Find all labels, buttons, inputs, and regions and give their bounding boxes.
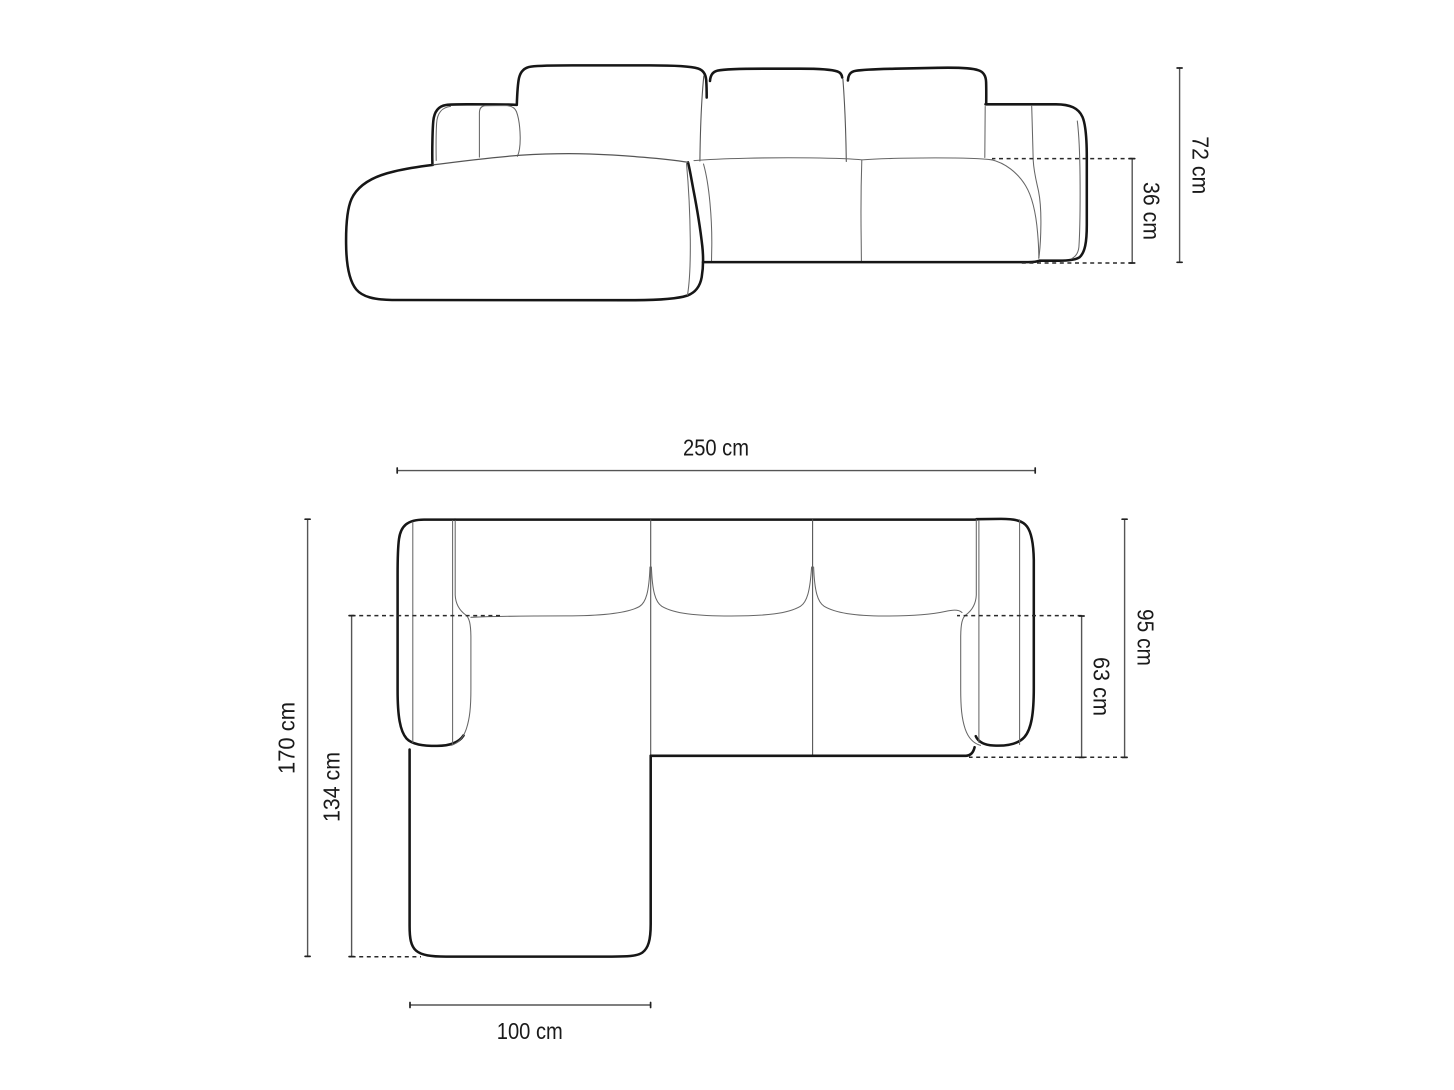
svg-text:100 cm: 100 cm <box>497 1018 563 1044</box>
svg-text:63 cm: 63 cm <box>1089 657 1115 716</box>
svg-text:72 cm: 72 cm <box>1187 136 1213 194</box>
svg-text:170 cm: 170 cm <box>273 702 299 774</box>
svg-text:134 cm: 134 cm <box>319 752 345 822</box>
svg-text:95 cm: 95 cm <box>1133 609 1159 666</box>
svg-text:36 cm: 36 cm <box>1138 182 1164 240</box>
svg-text:250 cm: 250 cm <box>683 435 749 461</box>
